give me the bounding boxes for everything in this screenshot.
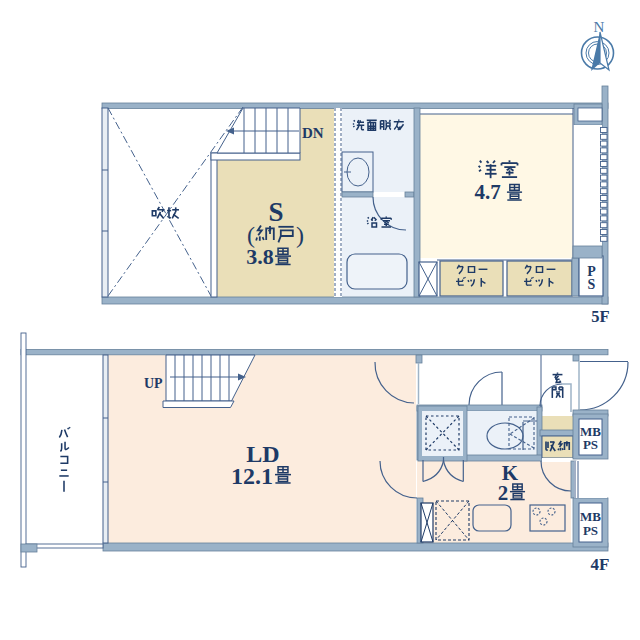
- svg-text:2: 2: [498, 481, 509, 505]
- svg-text:DN: DN: [302, 125, 324, 141]
- svg-text:S: S: [588, 277, 596, 292]
- svg-text:5F: 5F: [591, 307, 609, 326]
- svg-text:4.7: 4.7: [474, 180, 500, 204]
- svg-text:UP: UP: [144, 376, 163, 391]
- svg-text:PS: PS: [583, 523, 598, 538]
- svg-text:): ): [296, 222, 304, 248]
- svg-text:3.8: 3.8: [246, 244, 274, 269]
- svg-text:S: S: [268, 197, 283, 227]
- svg-text:12.1: 12.1: [231, 463, 273, 489]
- svg-text:4F: 4F: [591, 555, 610, 574]
- svg-text:N: N: [594, 19, 605, 35]
- svg-text:PS: PS: [583, 437, 598, 452]
